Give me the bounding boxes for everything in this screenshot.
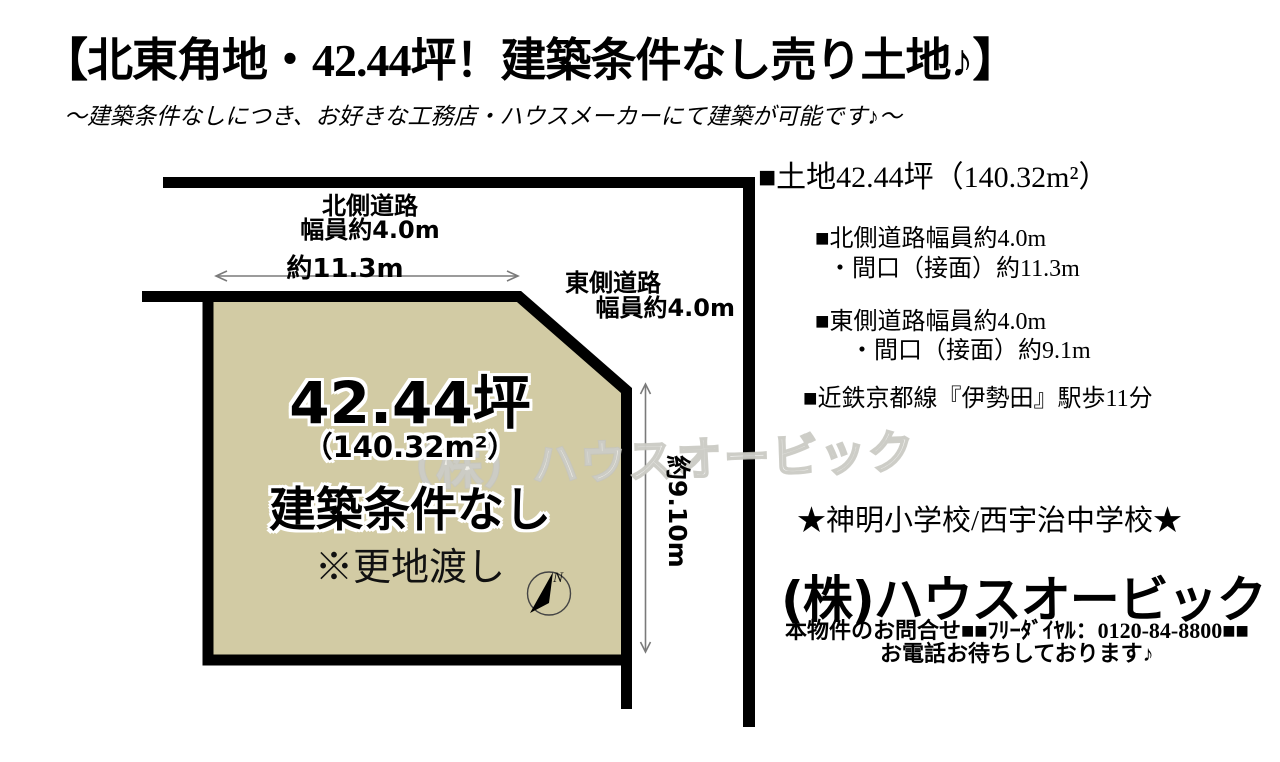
plot-boundary-extension [621,659,632,709]
east-road-label: 東側道路 幅員約4.0m [565,271,735,321]
detail-station-access: ■近鉄京都線『伊勢田』駅歩11分 [803,378,1153,413]
east-road-line1: 東側道路 [565,271,735,296]
north-road-line1: 北側道路 [270,194,470,218]
page-subtitle: ～建築条件なしにつき、お好きな工務店・ハウスメーカーにて建築が可能です♪～ [64,97,884,131]
contact-wait-line: お電話お待ちしております♪ [880,636,1154,668]
north-road-bar [163,177,755,188]
flyer-page: 【北東角地・42.44坪！建築条件なし売り土地♪】 ～建築条件なしにつき、お好き… [0,0,1280,762]
east-road-line2: 幅員約4.0m [565,296,735,321]
west-road-stub-bar [142,291,208,302]
land-area-heading: ■土地42.44坪（140.32m²） [758,152,1108,196]
detail-east-frontage: ・間口（接面）約9.1m [850,330,1091,365]
plot-condition-label: 建築条件なし [210,471,610,540]
plot-handover-note: ※更地渡し [210,536,610,591]
north-frontage-dimension: 約11.3m [245,248,445,285]
plot-area-m2: （140.32m²） [210,424,610,466]
page-title: 【北東角地・42.44坪！建築条件なし売り土地♪】 [42,24,962,90]
detail-north-frontage: ・間口（接面）約11.3m [828,248,1080,283]
north-road-line2: 幅員約4.0m [270,218,470,242]
school-district-line: ★神明小学校/西宇治中学校★ [797,497,1182,539]
north-road-label: 北側道路 幅員約4.0m [270,194,470,242]
east-depth-dimension: 約9.10m [661,455,697,568]
